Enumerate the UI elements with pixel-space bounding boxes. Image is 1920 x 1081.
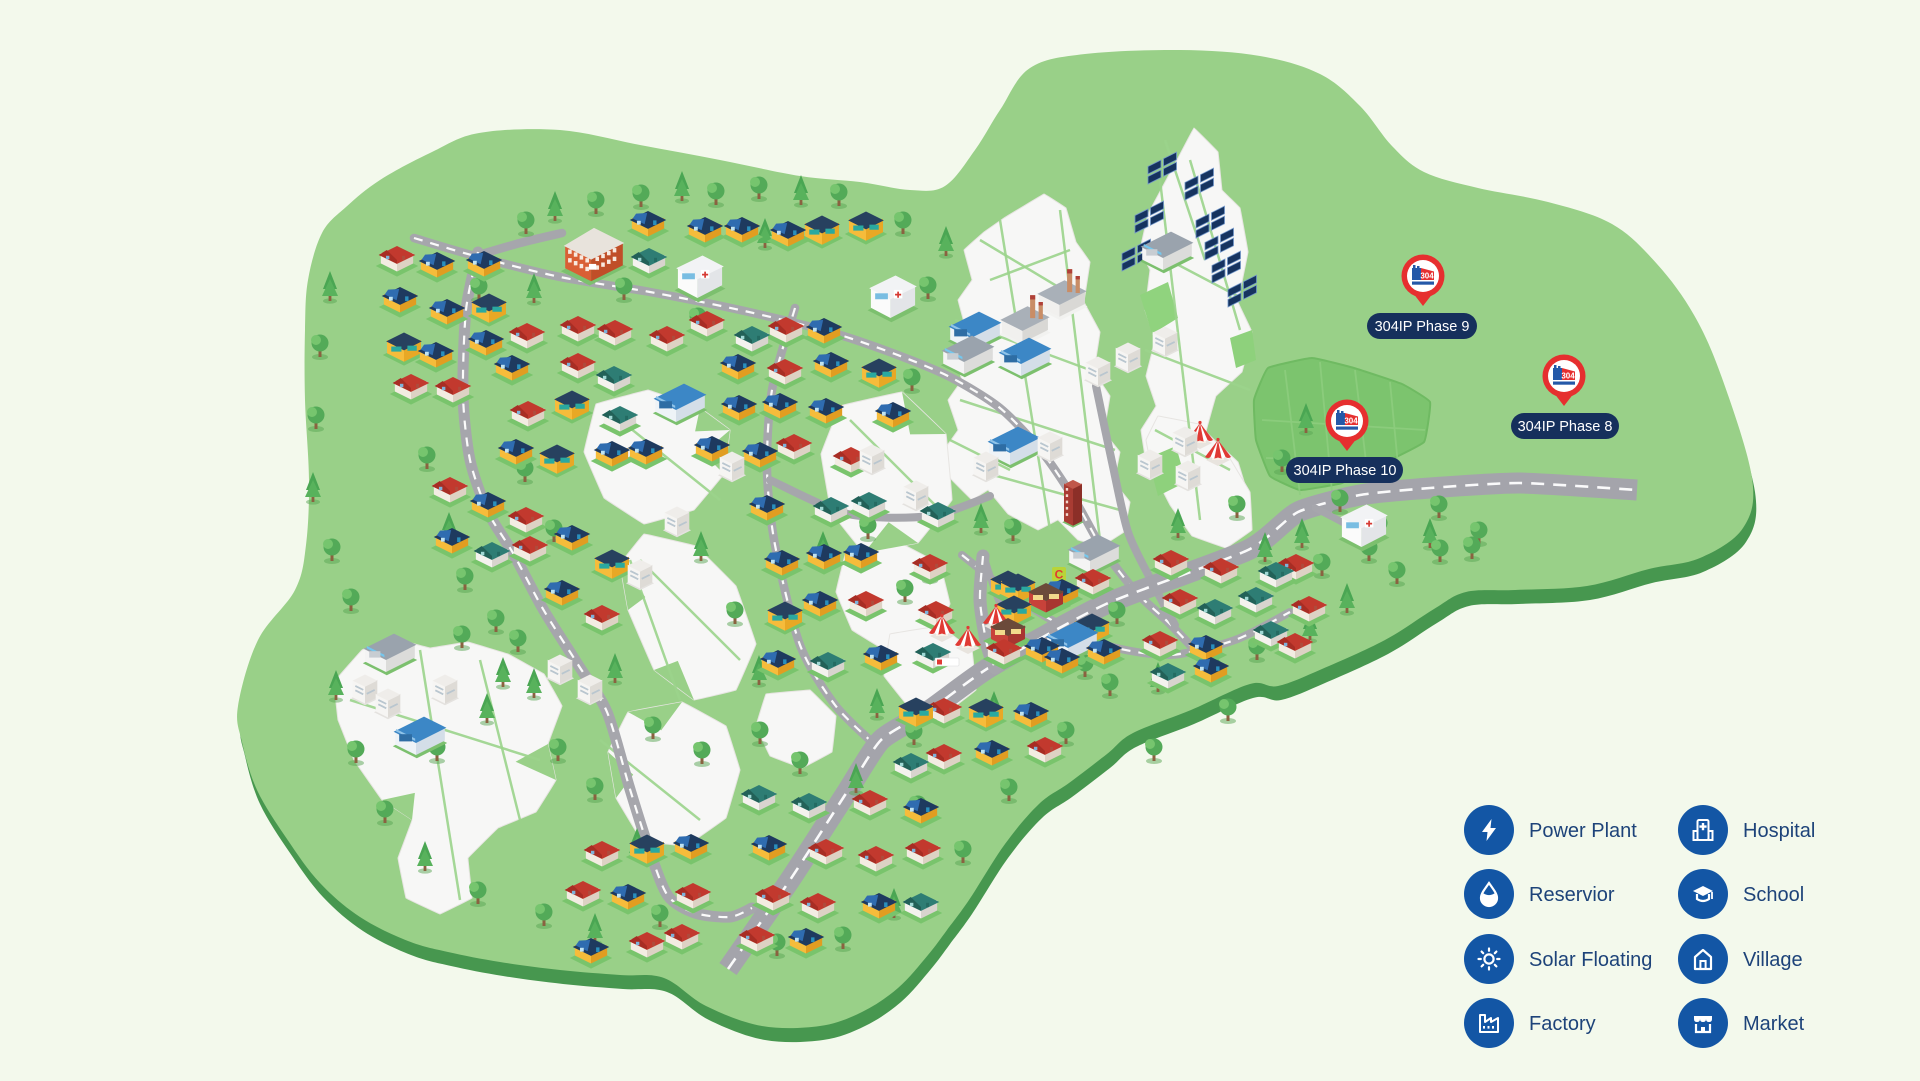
svg-text:304IP Phase 8: 304IP Phase 8 (1518, 419, 1613, 435)
svg-text:Factory: Factory (1529, 1013, 1596, 1035)
svg-text:Village: Village (1743, 949, 1803, 971)
svg-text:Market: Market (1743, 1013, 1805, 1035)
svg-text:304IP Phase 10: 304IP Phase 10 (1294, 463, 1397, 479)
svg-text:Hospital: Hospital (1743, 820, 1815, 842)
svg-text:Solar Floating: Solar Floating (1529, 949, 1652, 971)
svg-text:Reservior: Reservior (1529, 884, 1615, 906)
svg-text:Power Plant: Power Plant (1529, 820, 1637, 842)
svg-text:School: School (1743, 884, 1804, 906)
svg-text:304IP Phase 9: 304IP Phase 9 (1375, 319, 1470, 335)
